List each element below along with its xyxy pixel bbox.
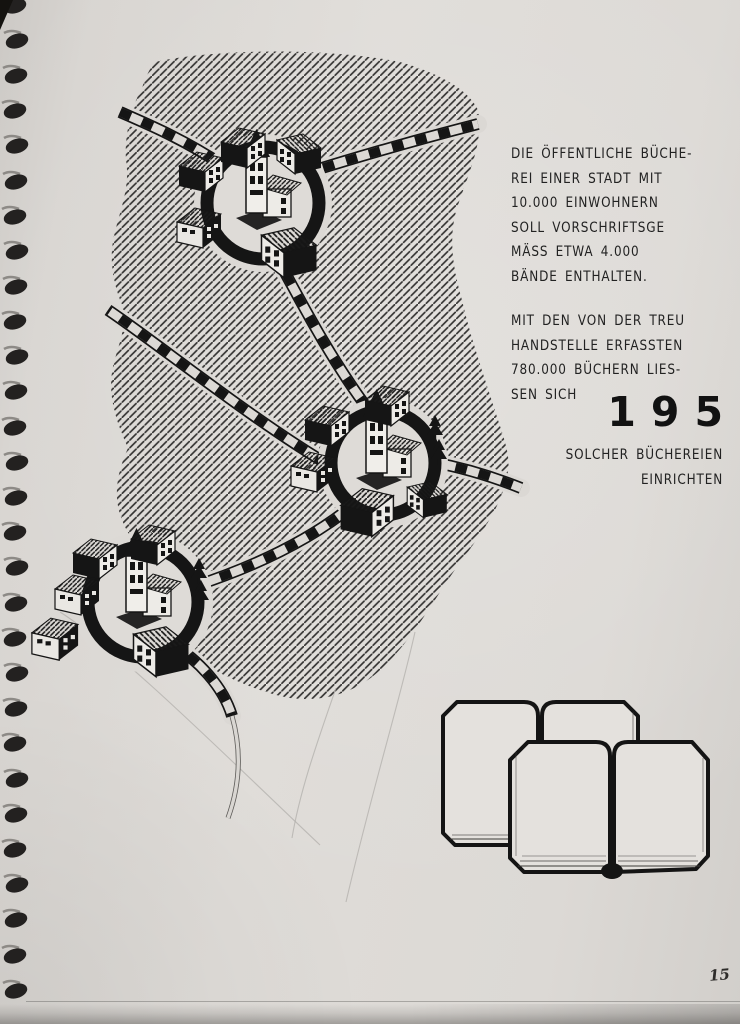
statistic-caption: SOLCHER BÜCHEREIEN EINRICHTEN bbox=[566, 443, 723, 493]
page-edge-line bbox=[26, 1001, 740, 1002]
page-number: 15 bbox=[708, 965, 730, 985]
page-bottom-shadow bbox=[0, 1004, 740, 1024]
statistic-block: 195 SOLCHER BÜCHEREIEN EINRICHTEN bbox=[540, 390, 723, 493]
spiral-binding-icon bbox=[0, 0, 46, 1024]
treuhand-line: 780.000 BÜCHERN LIES- bbox=[511, 358, 685, 383]
statistic-value: 195 bbox=[540, 390, 738, 434]
photo-corner-shadow bbox=[0, 0, 13, 30]
scanned-page: DIE ÖFFENTLICHE BÜCHE- REI EINER STADT M… bbox=[0, 0, 740, 1024]
intro-paragraph: DIE ÖFFENTLICHE BÜCHE- REI EINER STADT M… bbox=[511, 142, 692, 290]
statistic-caption-line: SOLCHER BÜCHEREIEN bbox=[566, 443, 723, 468]
book-spine-mark bbox=[601, 863, 623, 879]
open-books-icon bbox=[443, 702, 708, 879]
intro-line: DIE ÖFFENTLICHE BÜCHE- bbox=[511, 142, 692, 167]
statistic-caption-line: EINRICHTEN bbox=[566, 468, 723, 493]
intro-line: MÄSS ETWA 4.000 bbox=[511, 240, 692, 265]
intro-line: 10.000 EINWOHNERN bbox=[511, 191, 692, 216]
intro-line: SOLL VORSCHRIFTSGE bbox=[511, 216, 692, 241]
town-circle-bottom bbox=[32, 525, 213, 677]
intro-line: REI EINER STADT MIT bbox=[511, 167, 692, 192]
intro-line: BÄNDE ENTHALTEN. bbox=[511, 265, 692, 290]
treuhand-line: MIT DEN VON DER TREU bbox=[511, 309, 685, 334]
treuhand-line: HANDSTELLE ERFASSTEN bbox=[511, 334, 685, 359]
